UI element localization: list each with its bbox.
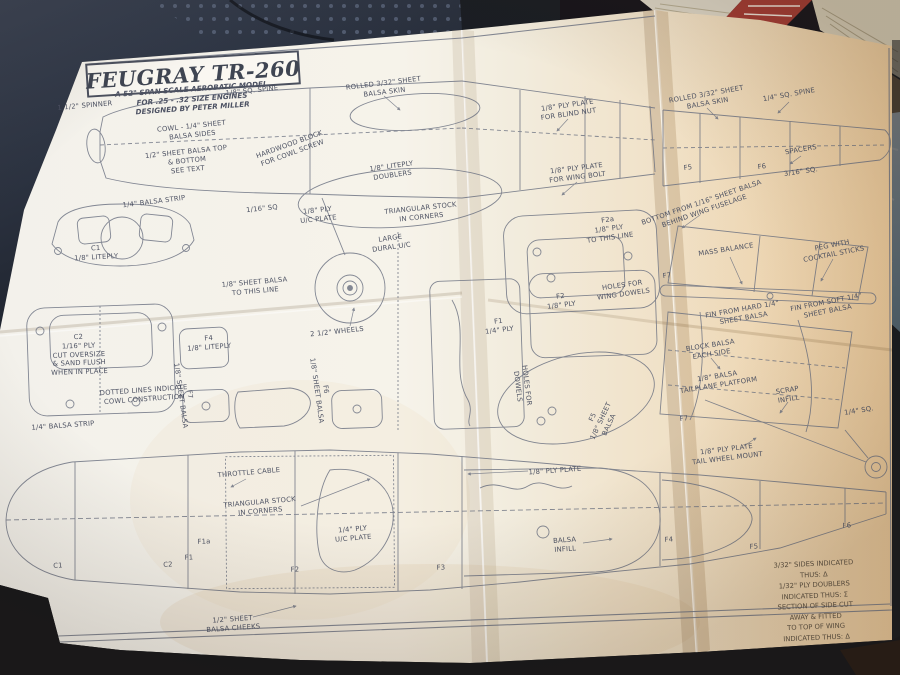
- photo-of-model-plan: FEUGRAY TR-260 A 52" SPAN SCALE AEROBATI…: [0, 0, 900, 675]
- right-edge-shadow: [892, 40, 900, 640]
- construction-notes: 3/32" SIDES INDICATED THUS: Δ 1/32" PLY …: [771, 557, 860, 645]
